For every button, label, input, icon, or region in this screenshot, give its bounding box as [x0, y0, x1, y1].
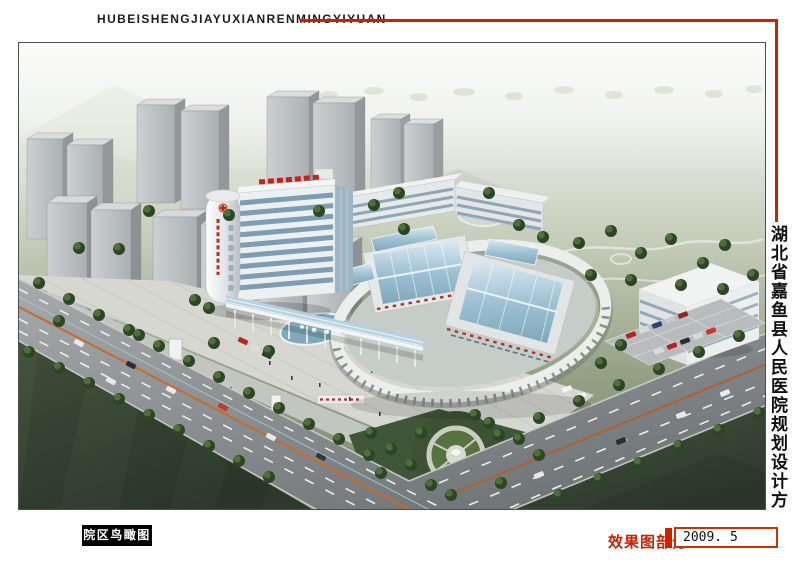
- presentation-board: HUBEISHENGJIAYUXIANRENMINGYIYUAN 湖北省嘉鱼县人…: [0, 0, 800, 565]
- red-chip: [665, 528, 672, 548]
- accent-line-vertical: [775, 19, 778, 222]
- rendering-caption: 院区鸟瞰图: [82, 525, 152, 546]
- accent-line-horizontal: [300, 19, 778, 22]
- vertical-title: 湖北省嘉鱼县人民医院规划设计方案: [764, 225, 790, 515]
- date-box: 2009. 5: [674, 527, 778, 548]
- aerial-rendering: [18, 42, 766, 510]
- cylinder-corner: [206, 190, 240, 303]
